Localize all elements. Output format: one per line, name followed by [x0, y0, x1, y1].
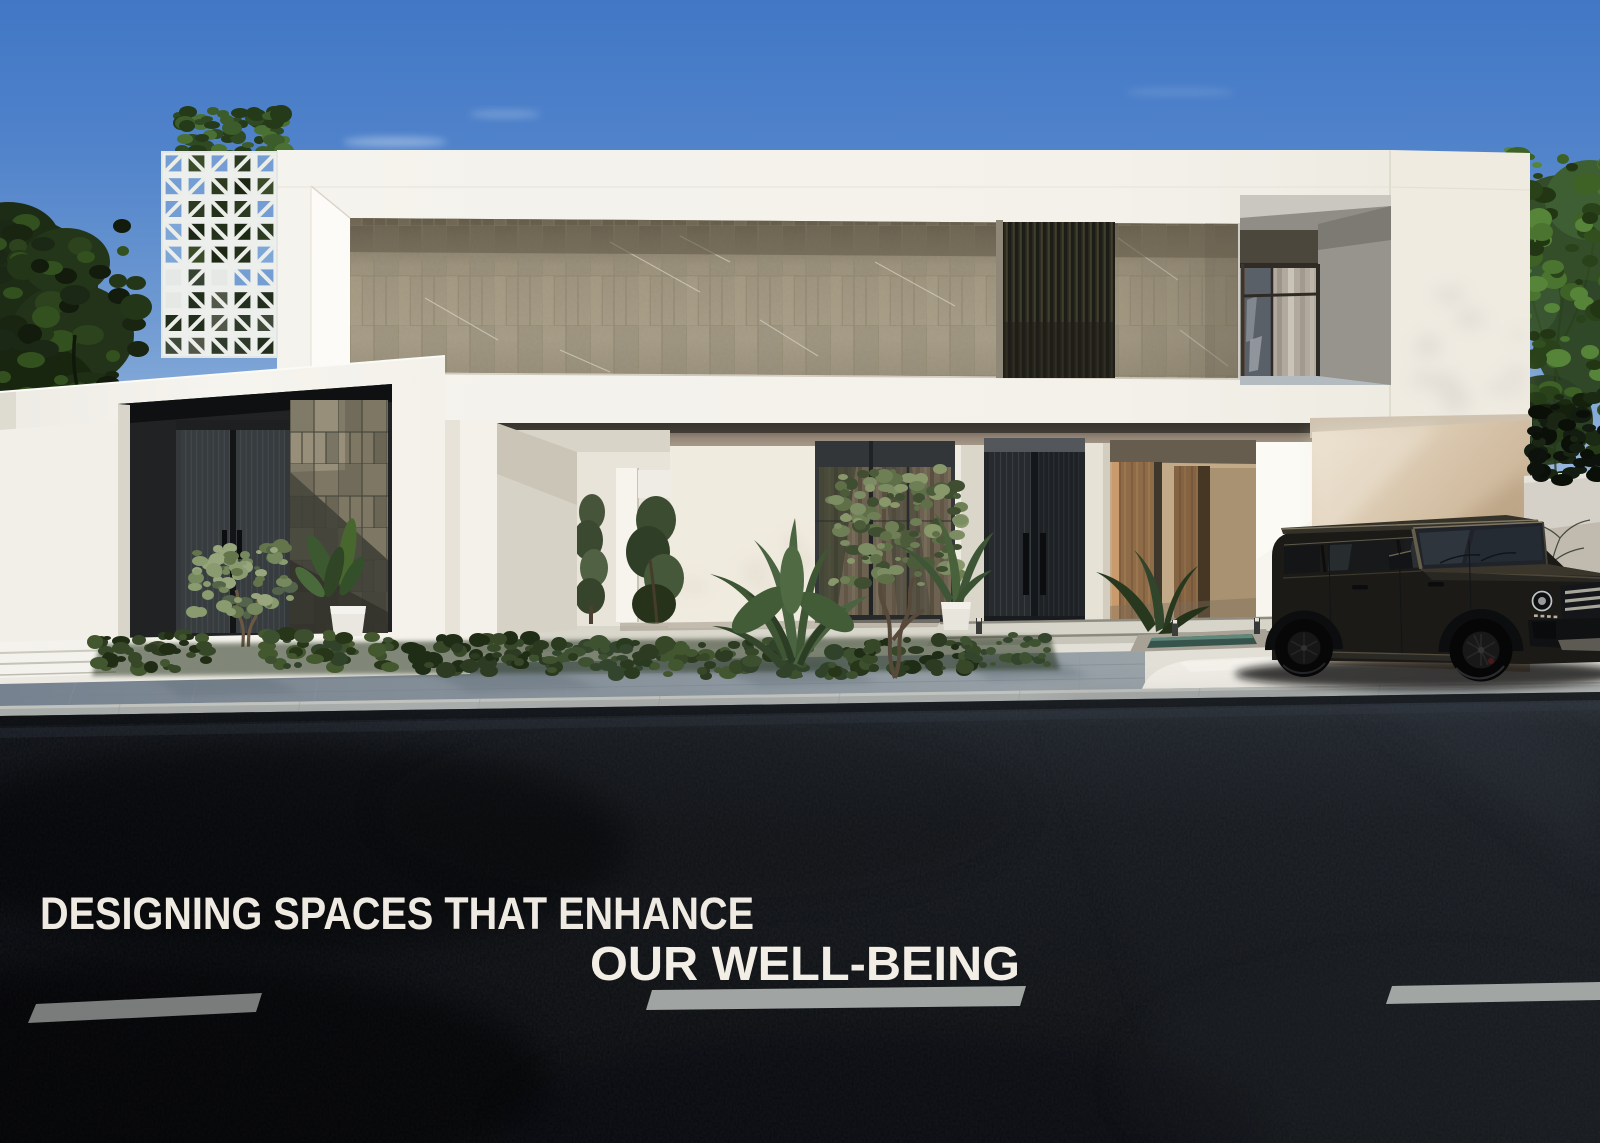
svg-text:OUR WELL-BEING: OUR WELL-BEING — [590, 938, 1020, 991]
svg-text:DESIGNING SPACES THAT ENHANCE: DESIGNING SPACES THAT ENHANCE — [40, 888, 754, 939]
